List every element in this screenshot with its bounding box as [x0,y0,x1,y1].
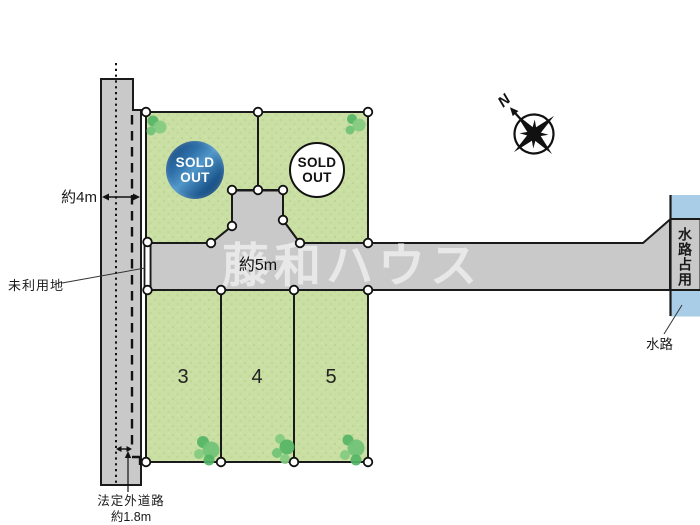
plot-3-number: 3 [177,366,188,388]
unused-land-label: 未利用地 [8,278,64,293]
plot-4-number: 4 [251,366,262,388]
road-width-label-left: 約4m [61,189,97,206]
informal-road-width-label: 約1.8m [111,509,151,524]
sold-out-badge-plot-1: SOLD OUT [166,141,224,199]
compass-north-label: N [495,90,515,111]
waterway-top [671,195,700,219]
sold-out-badge-plot-2: SOLD OUT [289,142,345,198]
sold-out-text: SOLD OUT [294,155,340,185]
road-width-label-main: 約5m [239,256,277,274]
informal-road-label: 法定外道路 [97,493,165,508]
plot-5-number: 5 [325,366,336,388]
compass-rose: N [478,77,572,173]
left-road [101,79,141,485]
waterway-occupied-label: 水路占用 [672,221,698,293]
unused-land-strip [145,242,151,290]
site-plan-svg: 藤和ハウス [0,0,700,525]
plot-map: 藤和ハウス [0,0,700,525]
waterway-bottom [671,291,700,317]
sold-out-text: SOLD OUT [172,155,218,185]
waterway-label: 水路 [646,337,674,352]
